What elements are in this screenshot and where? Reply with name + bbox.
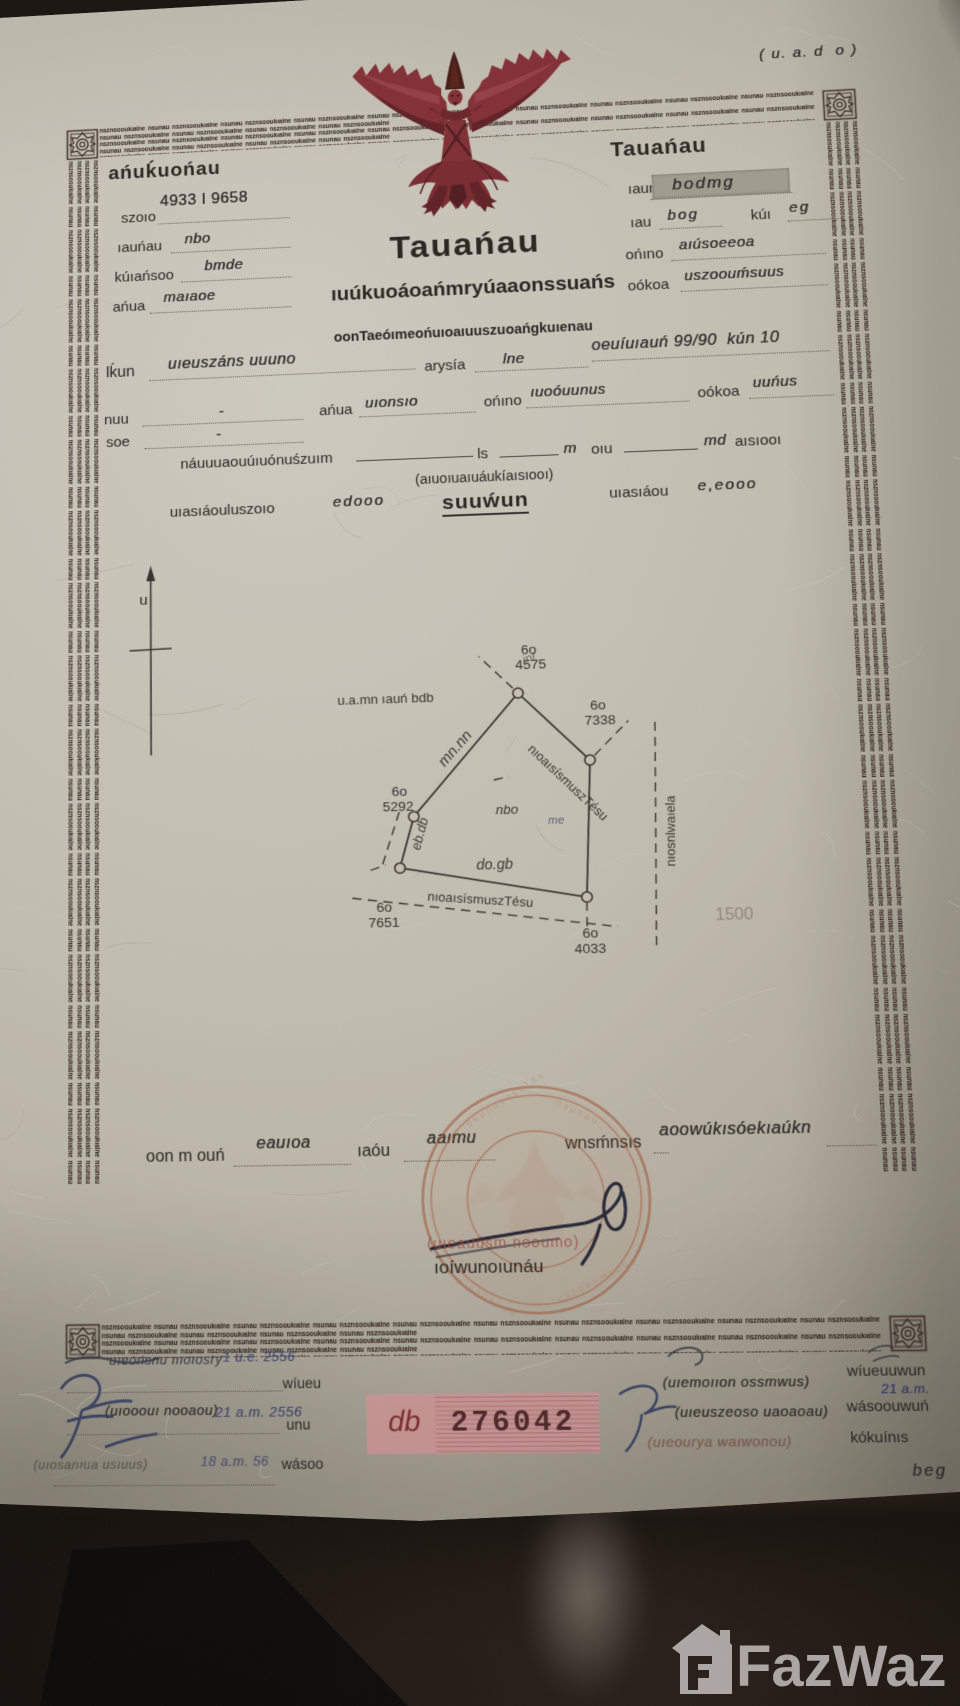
svg-text:me: me xyxy=(548,815,565,827)
svg-text:nıoaısísmuszTésu: nıoaısísmuszTésu xyxy=(525,743,610,824)
svg-text:6o: 6o xyxy=(582,925,598,941)
svg-text:FazWaz: FazWaz xyxy=(736,1634,947,1699)
svg-text:u.a.mn ıauń bdb: u.a.mn ıauń bdb xyxy=(337,690,434,708)
svg-text:nıoaısísmuszTésu: nıoaısísmuszTésu xyxy=(427,891,534,911)
svg-text:6o: 6o xyxy=(391,784,407,800)
svg-text:7338: 7338 xyxy=(584,712,616,728)
svg-text:5292: 5292 xyxy=(382,799,413,815)
svg-text:nbo: nbo xyxy=(495,802,518,818)
svg-text:6o: 6o xyxy=(376,900,392,916)
svg-text:7651: 7651 xyxy=(368,915,400,931)
svg-text:6o: 6o xyxy=(590,697,606,713)
svg-text:do.gb: do.gb xyxy=(476,856,513,873)
svg-text:1500: 1500 xyxy=(715,906,754,925)
svg-text:4033: 4033 xyxy=(574,940,606,956)
svg-text:mn.nn: mn.nn xyxy=(434,726,476,769)
svg-text:nıosnlwaıela: nıosnlwaıela xyxy=(664,795,678,867)
